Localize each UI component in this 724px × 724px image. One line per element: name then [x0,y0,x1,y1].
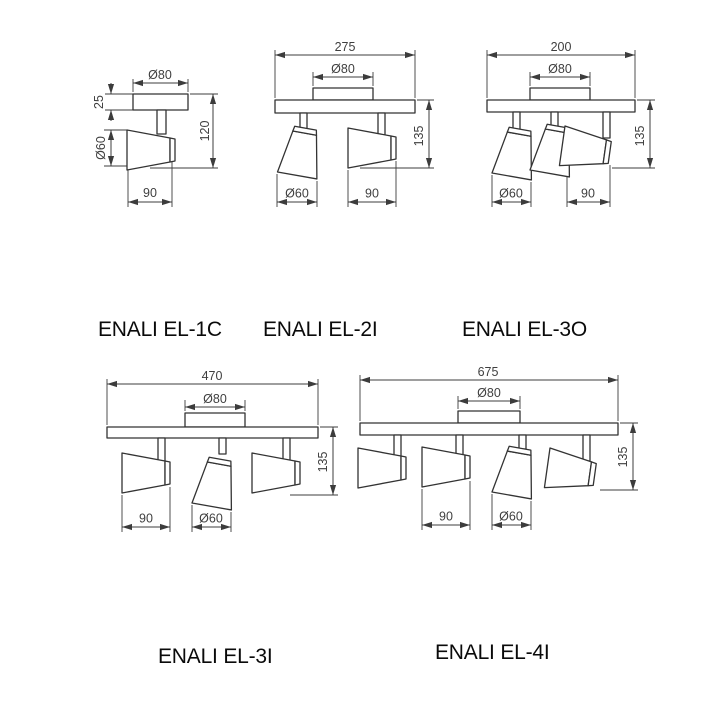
el4i-stem [456,435,463,456]
el3i-dim-head-diameter: Ø60 [199,512,223,526]
el3i-stem [158,438,165,462]
el4i-dim-canopy-diameter: Ø80 [477,386,501,400]
figure-label-el-2i: ENALI EL-2I [263,318,378,342]
figure-el-1c: Ø80 25 Ø60 120 90 [92,68,218,207]
el1c-dim-total-height: 120 [198,121,212,142]
el3i-dim-total-height: 135 [316,452,330,473]
el3i-canopy [185,413,245,427]
el4i-stem [583,435,590,461]
el4i-lamp-head-tilted [492,445,540,499]
el1c-dim-canopy-height: 25 [92,95,106,109]
figure-label-el-3o: ENALI EL-3O [462,318,587,342]
el4i-bar [360,423,618,435]
el3o-lamp-head-tilted [492,126,540,180]
el4i-dim-total-height: 135 [616,447,630,468]
el3i-fixture [107,413,318,510]
el2i-lamp-head [348,128,396,168]
figure-label-el-4i: ENALI EL-4I [435,641,550,665]
el3i-dim-head-length: 90 [139,512,153,526]
el4i-stem [519,435,526,449]
el4i-stem [394,435,401,457]
el3o-bar [487,100,635,112]
el4i-fixture [358,411,618,499]
el2i-dim-head-length: 90 [365,187,379,201]
el2i-stem [378,113,385,135]
el3i-lamp-head-tilted [192,456,240,510]
el1c-dim-canopy-diameter: Ø80 [148,68,172,82]
el3o-fixture [487,88,635,180]
el4i-dim-head-length: 90 [439,510,453,524]
el3o-dim-canopy-diameter: Ø80 [548,62,572,76]
figure-el-3o: 200 Ø80 135 Ø60 90 [487,40,655,207]
el3i-bar [107,427,318,438]
figure-el-4i: 675 Ø80 135 90 Ø60 [358,365,638,530]
el3o-stem [513,112,520,130]
figure-label-el-3i: ENALI EL-3I [158,645,273,669]
el2i-bar [275,100,415,113]
figure-el-2i: 275 Ø80 135 Ø60 90 [275,40,434,207]
el2i-lamp-head-tilted [278,125,326,179]
el1c-dim-head-length: 90 [143,186,157,200]
el4i-dim-head-diameter: Ø60 [499,510,523,524]
el3o-dim-head-diameter: Ø60 [499,187,523,201]
el4i-dim-overall-length: 675 [478,365,499,379]
technical-drawings-canvas: Ø80 25 Ø60 120 90 [0,0,724,724]
figure-label-el-1c: ENALI EL-1C [98,318,222,342]
el3i-dim-overall-length: 470 [202,369,223,383]
el2i-dim-canopy-diameter: Ø80 [331,62,355,76]
el3i-dim-canopy-diameter: Ø80 [203,392,227,406]
el3o-dim-total-height: 135 [633,126,647,147]
el2i-fixture [275,88,415,179]
el1c-dim-head-diameter: Ø60 [94,136,108,160]
el2i-dim-overall-length: 275 [335,40,356,54]
el2i-dim-head-diameter: Ø60 [285,187,309,201]
el3o-stem [603,112,610,138]
el3i-stem [283,438,290,461]
el1c-canopy [133,94,188,110]
el3o-canopy [530,88,590,100]
el3i-lamp-head [252,453,300,493]
el3o-dim-overall-length: 200 [551,40,572,54]
el1c-fixture [127,94,188,170]
el1c-lamp-head [127,130,175,170]
el2i-canopy [313,88,373,100]
el4i-canopy [458,411,520,423]
el3o-dim-head-length: 90 [581,187,595,201]
page: Ø80 25 Ø60 120 90 [0,0,724,724]
el3i-stem [219,438,226,454]
figure-el-3i: 470 Ø80 135 90 Ø60 [107,369,338,532]
el1c-stem [157,110,166,134]
el2i-dim-total-height: 135 [412,126,426,147]
